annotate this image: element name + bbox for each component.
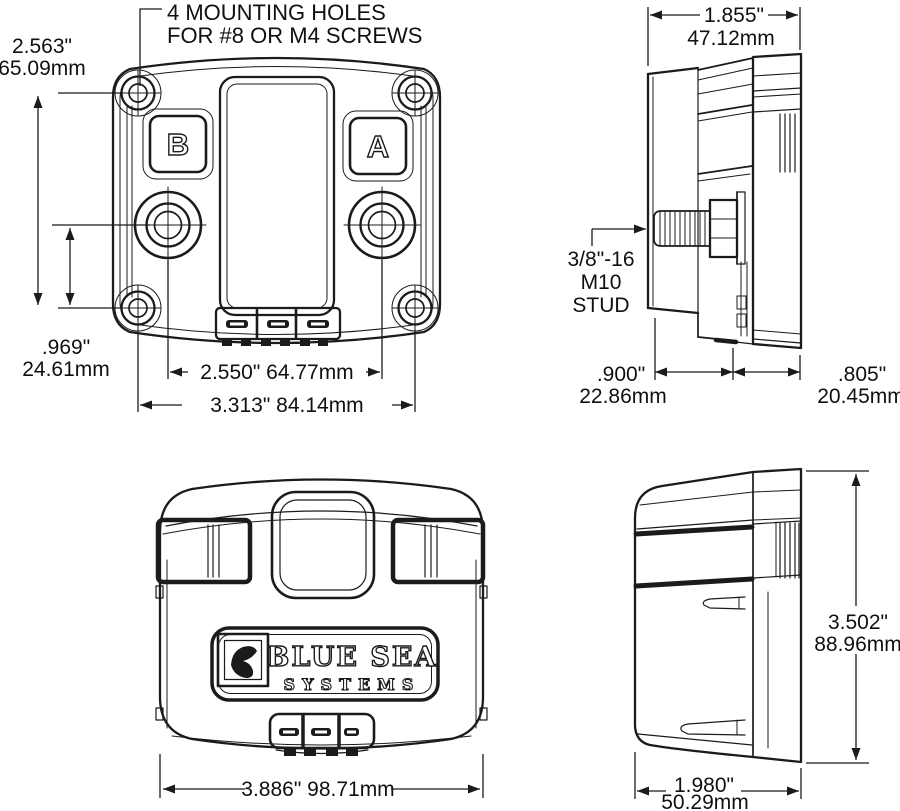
dim-front-depth-mm: 22.86mm <box>579 385 667 408</box>
dim-overall-width-label: 3.886" 98.71mm <box>241 778 394 801</box>
dim-overall-depth: 1.980" 50.29mm <box>635 752 801 811</box>
dim-rear-depth-in: .805" <box>838 363 886 386</box>
stud-washer-plate <box>737 192 745 264</box>
brand-logo-line1: BLUE SEA <box>267 642 438 673</box>
dim-overall-height: 3.502" 88.96mm <box>806 471 900 763</box>
cover-terminal-shroud <box>270 714 374 756</box>
cover-side-hook-upper <box>703 597 745 609</box>
stud-label-line3: STUD <box>572 294 629 317</box>
button-a: A <box>343 111 413 181</box>
dim-front-depth: .900" 22.86mm <box>579 318 733 408</box>
front-body-inner-outline <box>120 67 433 335</box>
dim-front-depth-in: .900" <box>597 363 645 386</box>
stud-hex-nut <box>710 200 737 257</box>
cover-side-outline <box>635 469 801 762</box>
brand-logo: BLUE SEA SYSTEMS <box>212 628 438 700</box>
side-top-faces <box>698 58 753 181</box>
cover-knob <box>272 492 374 598</box>
technical-drawing-page: B A <box>0 0 900 811</box>
side-latch-ridges <box>780 114 795 172</box>
dim-hole-height-in: 2.563" <box>12 35 72 58</box>
cover-latch-right <box>393 520 483 582</box>
cover-latch-left <box>158 520 250 582</box>
dim-overall-height-mm: 88.96mm <box>814 633 900 656</box>
dim-overall-height-in: 3.502" <box>828 611 888 634</box>
mounting-hole-top-right <box>392 70 438 116</box>
stud-callout: 3/8"-16 M10 STUD <box>568 229 647 317</box>
side-view: 1.855" 47.12mm 3/8"-16 M10 STUD .900" 22… <box>568 4 900 408</box>
note-line2: FOR #8 OR M4 SCREWS <box>167 23 422 48</box>
button-b: B <box>143 109 213 179</box>
dim-mounting-hole-height: 2.563" 65.09mm <box>0 35 122 308</box>
cover-side-latch-band <box>636 521 801 586</box>
mounting-holes-note: 4 MOUNTING HOLES FOR #8 OR M4 SCREWS <box>140 0 422 86</box>
mounting-hole-bottom-right <box>392 285 438 331</box>
latch-grip-ridges <box>780 523 799 578</box>
cover-side-hook-lower <box>681 720 745 735</box>
stud-label-line2: M10 <box>581 271 622 294</box>
cover-side-body-lines <box>638 472 768 757</box>
front-view: B A <box>0 0 440 417</box>
dim-depth: 1.855" 47.12mm <box>648 4 800 66</box>
dim-hole-height-mm: 65.09mm <box>0 57 86 80</box>
cover-front-view: BLUE SEA SYSTEMS <box>156 480 487 802</box>
side-clip-detail <box>737 262 747 336</box>
note-line1: 4 MOUNTING HOLES <box>167 0 386 25</box>
dim-hole-spacing-label: 3.313" 84.14mm <box>210 394 363 417</box>
dim-rear-depth: .805" 20.45mm <box>733 355 900 408</box>
actuator-window <box>220 77 334 315</box>
cover-top-band <box>163 511 480 534</box>
dim-overall-depth-mm: 50.29mm <box>661 791 749 811</box>
dim-overall-width: 3.886" 98.71mm <box>160 754 483 801</box>
stud-label-line1: 3/8"-16 <box>568 248 635 271</box>
stud-terminal-right <box>344 187 420 263</box>
side-stud <box>654 192 745 264</box>
front-body-outer-outline <box>113 58 440 343</box>
button-b-label: B <box>167 127 189 162</box>
drawing-canvas: B A <box>0 0 900 811</box>
dim-stud-spacing-label: 2.550" 64.77mm <box>200 361 353 384</box>
dim-depth-in: 1.855" <box>704 4 764 27</box>
wave-icon <box>231 646 257 678</box>
dim-rear-depth-mm: 20.45mm <box>817 385 900 408</box>
dim-stud-to-hole-mm: 24.61mm <box>22 358 110 381</box>
brand-logo-line2: SYSTEMS <box>284 675 421 694</box>
dim-stud-to-hole-in: .969" <box>42 336 90 359</box>
dim-depth-mm: 47.12mm <box>687 27 775 50</box>
side-rear-housing <box>737 54 801 348</box>
brand-logo-icon <box>218 634 268 686</box>
cover-side-view: 3.502" 88.96mm 1.980" 50.29mm <box>635 469 900 811</box>
button-a-label: A <box>367 129 389 164</box>
